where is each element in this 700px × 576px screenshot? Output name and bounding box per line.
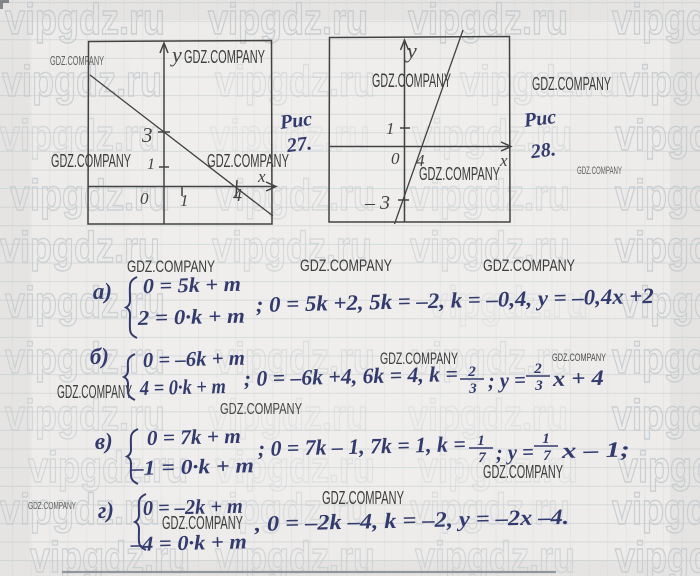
svg-text:0 = –2k + m: 0 = –2k + m xyxy=(143,494,244,520)
svg-text:– 3: – 3 xyxy=(364,192,390,214)
svg-text:1: 1 xyxy=(180,191,189,210)
svg-text:vipgdz.ru: vipgdz.ru xyxy=(612,391,700,440)
svg-text:б): б) xyxy=(90,344,110,369)
svg-text:3: 3 xyxy=(468,381,477,397)
svg-text:Рис: Рис xyxy=(278,108,314,134)
svg-text:GDZ.COMPANY: GDZ.COMPANY xyxy=(51,151,131,171)
svg-text:; 0 = –6k +4, 6k = 4, k =: ; 0 = –6k +4, 6k = 4, k = xyxy=(244,361,459,391)
svg-text:vipgdz.ru: vipgdz.ru xyxy=(612,0,700,44)
svg-text:28.: 28. xyxy=(529,138,557,163)
svg-text:vipgdz.ru: vipgdz.ru xyxy=(5,0,165,44)
svg-text:0: 0 xyxy=(391,149,400,168)
svg-text:2 = 0·k + m: 2 = 0·k + m xyxy=(136,304,245,330)
svg-text:2: 2 xyxy=(467,364,476,380)
svg-text:x – 1;: x – 1; xyxy=(560,436,630,463)
svg-text:GDZ.COMPANY: GDZ.COMPANY xyxy=(50,54,104,68)
svg-text:x: x xyxy=(257,167,266,186)
svg-text:GDZ.COMPANY: GDZ.COMPANY xyxy=(220,401,302,418)
svg-text:7: 7 xyxy=(478,450,486,466)
svg-text:GDZ.COMPANY: GDZ.COMPANY xyxy=(483,256,575,275)
svg-text:; y =: ; y = xyxy=(488,367,527,393)
svg-text:vipgdz.ru: vipgdz.ru xyxy=(415,533,575,576)
svg-text:vipgdz.ru: vipgdz.ru xyxy=(620,57,700,106)
svg-text:GDZ.COMPANY: GDZ.COMPANY xyxy=(28,501,76,512)
svg-text:0 = 5k + m: 0 = 5k + m xyxy=(143,272,242,298)
svg-text:GDZ.COMPANY: GDZ.COMPANY xyxy=(483,462,563,482)
svg-text:27.: 27. xyxy=(285,132,313,157)
svg-text:0 = 7k + m: 0 = 7k + m xyxy=(147,424,242,450)
svg-text:GDZ.COMPANY: GDZ.COMPANY xyxy=(322,488,404,508)
svg-text:4: 4 xyxy=(416,151,425,170)
svg-text:vipgdz.ru: vipgdz.ru xyxy=(612,485,700,534)
svg-text:1: 1 xyxy=(542,431,550,447)
svg-text:GDZ.COMPANY: GDZ.COMPANY xyxy=(372,70,451,92)
svg-text:; 0 = 7k – 1, 7k = 1, k =: ; 0 = 7k – 1, 7k = 1, k = xyxy=(258,431,467,461)
svg-text:4: 4 xyxy=(233,185,242,205)
svg-text:4 = 0·k + m: 4 = 0·k + m xyxy=(139,374,226,400)
svg-text:vipgdz.ru: vipgdz.ru xyxy=(612,334,700,383)
svg-text:GDZ.COMPANY: GDZ.COMPANY xyxy=(577,165,622,177)
svg-text:г): г) xyxy=(98,498,115,523)
svg-text:0 = –6k + m: 0 = –6k + m xyxy=(143,346,246,372)
svg-text:–4 = 0·k + m: –4 = 0·k + m xyxy=(130,529,248,556)
svg-text:vipgdz.ru: vipgdz.ru xyxy=(615,171,700,220)
svg-text:3: 3 xyxy=(534,378,543,394)
svg-text:GDZ.COMPANY: GDZ.COMPANY xyxy=(57,382,132,402)
svg-text:vipgdz.ru: vipgdz.ru xyxy=(615,533,700,576)
svg-text:; y =: ; y = xyxy=(496,439,535,465)
svg-text:GDZ.COMPANY: GDZ.COMPANY xyxy=(300,256,392,275)
svg-text:–1 = 0·k + m: –1 = 0·k + m xyxy=(130,453,254,480)
svg-text:2: 2 xyxy=(533,361,542,377)
svg-text:GDZ.COMPANY: GDZ.COMPANY xyxy=(419,164,500,184)
svg-text:y: y xyxy=(405,38,417,63)
svg-text:1: 1 xyxy=(147,156,155,173)
svg-text:vipgdz.ru: vipgdz.ru xyxy=(0,485,160,534)
svg-text:в): в) xyxy=(95,429,114,454)
svg-text:3: 3 xyxy=(141,123,153,147)
svg-text:GDZ.COMPANY: GDZ.COMPANY xyxy=(184,47,265,67)
svg-text:7: 7 xyxy=(543,448,551,464)
svg-text:0: 0 xyxy=(140,189,149,208)
svg-text:y: y xyxy=(170,42,182,67)
svg-text:GDZ.COMPANY: GDZ.COMPANY xyxy=(207,151,289,171)
svg-text:vipgdz.ru: vipgdz.ru xyxy=(615,111,700,160)
svg-text:x + 4: x + 4 xyxy=(551,365,604,391)
svg-text:vipgdz.ru: vipgdz.ru xyxy=(615,223,700,272)
svg-text:а): а) xyxy=(93,279,113,304)
svg-text:GDZ.COMPANY: GDZ.COMPANY xyxy=(552,352,606,364)
svg-text:GDZ.COMPANY: GDZ.COMPANY xyxy=(532,74,611,94)
svg-text:1: 1 xyxy=(386,119,395,138)
svg-text:x: x xyxy=(499,151,508,170)
svg-text:1: 1 xyxy=(477,433,485,449)
svg-text:Рис: Рис xyxy=(522,106,558,132)
